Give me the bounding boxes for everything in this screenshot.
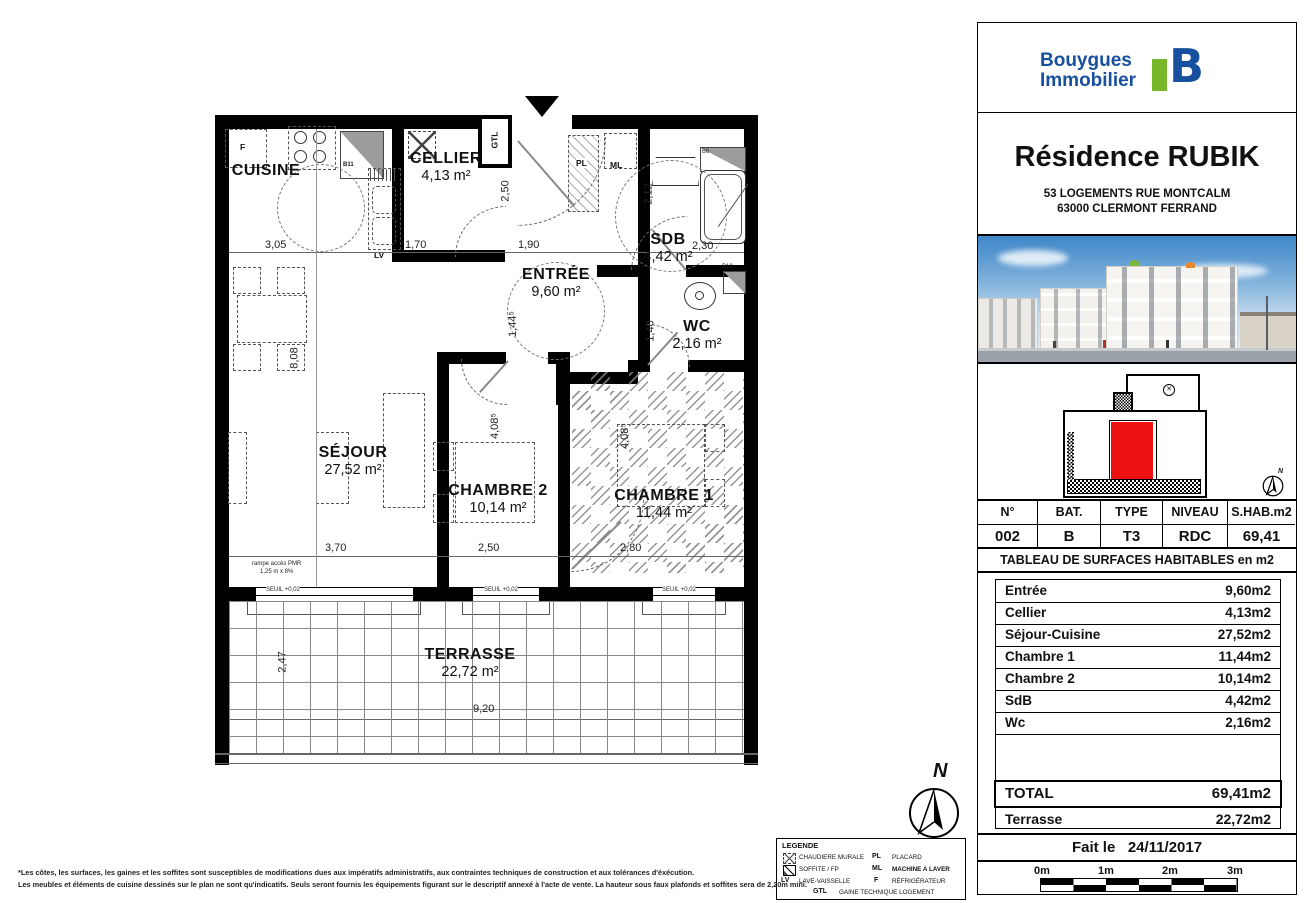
wall (215, 115, 478, 129)
seuil-note: SEUIL +0,02 (266, 587, 300, 593)
scale-bar (1040, 878, 1238, 892)
soffit-tag-b10: B10 (722, 264, 733, 270)
north-label: N (933, 760, 947, 783)
dim-label: 2,80 (620, 542, 641, 554)
key-plan: ✕ (1063, 372, 1213, 498)
street-lamp (1266, 296, 1268, 350)
nightstand (705, 424, 725, 452)
room-label-cellier: CELLIER4,13 m² (404, 150, 488, 184)
scale-label: 1m (1098, 865, 1114, 877)
soffit-tag-b11: B11 (343, 162, 354, 168)
door-arc (428, 48, 606, 226)
nightstand (433, 442, 454, 471)
dim-label: 2,50 (500, 180, 512, 201)
surface-row-terrasse: Terrasse22,72m2 (996, 808, 1280, 829)
pedestrian (1053, 341, 1056, 348)
room-label-chambre2: CHAMBRE 210,14 m² (448, 482, 548, 516)
surface-row: Cellier4,13m2 (996, 602, 1280, 625)
wall (215, 115, 229, 601)
wall (714, 587, 744, 601)
railing (215, 763, 758, 764)
surface-row: Chambre 210,14m2 (996, 668, 1280, 691)
unit-info-value: 002 (978, 524, 1038, 549)
mini-compass-icon: N (1262, 470, 1288, 498)
wall (215, 601, 229, 765)
brand-name-line2: Immobilier (1040, 71, 1136, 91)
surface-row: Wc2,16m2 (996, 712, 1280, 735)
key-plan-box: ✕ N (977, 363, 1297, 500)
unit-info-header: BAT. (1038, 501, 1101, 525)
brand-logo: Bouygues Immobilier B (1040, 45, 1240, 95)
scale-label: 0m (1034, 865, 1050, 877)
legend-item-label: CHAUDIERE MURALE (799, 854, 864, 861)
ramp-note2: 1,25 m x 8% (260, 569, 293, 575)
room-label-terrasse: TERRASSE22,72 m² (415, 646, 525, 680)
surface-row: SdB4,42m2 (996, 690, 1280, 713)
room-label-cuisine: CUISINE (218, 162, 314, 180)
north-compass-icon: N (905, 760, 967, 844)
ml-tag: ML (610, 160, 622, 170)
zone-line (316, 129, 317, 587)
building-main (1106, 266, 1238, 356)
toilet (684, 282, 716, 310)
building-photo (977, 235, 1297, 363)
wall (538, 587, 652, 601)
wall (437, 352, 449, 601)
disclaimer-line2: Les meubles et éléments de cuisine dessi… (18, 880, 963, 889)
fridge-tag: F (240, 142, 245, 152)
pedestrian (1103, 340, 1106, 348)
wall (744, 601, 758, 765)
logo-box: Bouygues Immobilier B (977, 22, 1297, 113)
scale-label: 2m (1162, 865, 1178, 877)
dim-label: 1,90 (518, 239, 539, 251)
chair (277, 267, 305, 294)
entry-arrow-icon (525, 96, 559, 117)
street (978, 348, 1296, 363)
dim-label: 4,08⁵ (489, 413, 501, 439)
chair (233, 267, 261, 294)
cloud (998, 250, 1068, 266)
scale-label: 3m (1227, 865, 1243, 877)
brand-name-line1: Bouygues (1040, 51, 1136, 71)
dim-label: 2,12 (643, 183, 655, 204)
room-label-chambre1: CHAMBRE 111,44 m² (613, 487, 715, 521)
legend-item-label: GAINE TECHNIQUE LOGEMENT (839, 889, 934, 896)
wall (572, 115, 758, 129)
surface-row-total: TOTAL69,41m2 (994, 780, 1282, 808)
wall (229, 587, 255, 601)
legend-item-abbr: GTL (813, 888, 827, 895)
brand-b-icon: B (1152, 49, 1222, 97)
dim-label: 8,08 (289, 347, 301, 368)
surface-table-box: Entrée9,60m2 Cellier4,13m2 Séjour-Cuisin… (977, 572, 1297, 834)
dim-line (229, 556, 744, 557)
date-value: 24/11/2017 (1128, 839, 1202, 856)
boiler-legend-icon (783, 853, 796, 864)
title-box: Résidence RUBIK 53 LOGEMENTS RUE MONTCAL… (977, 112, 1297, 235)
residence-address: 53 LOGEMENTS RUE MONTCALM 63000 CLERMONT… (978, 187, 1296, 217)
dim-label: 1,44⁵ (507, 311, 519, 337)
room-label-sejour: SÉJOUR27,52 m² (308, 444, 398, 478)
unit-info-header: NIVEAU (1163, 501, 1228, 525)
seuil-note: SEUIL +0,02 (662, 587, 696, 593)
surface-row: Séjour-Cuisine27,52m2 (996, 624, 1280, 647)
scale-bar-box: 0m 1m 2m 3m (977, 861, 1297, 895)
radiator (228, 432, 247, 504)
gtl-tag: GTL (490, 132, 500, 149)
room-label-entree: ENTRÉE9,60 m² (511, 266, 601, 300)
dim-label: 2,50 (478, 542, 499, 554)
keyplan-mark: ✕ (1163, 384, 1175, 396)
parasol-orange (1186, 262, 1195, 268)
kitchen-sink (368, 168, 401, 250)
room-label-wc: WC2,16 m² (660, 318, 734, 352)
dim-label: 4,08⁵ (619, 423, 631, 449)
building-far-left (978, 298, 1038, 352)
date-label: Fait le (1072, 839, 1115, 856)
dim-label: 2,30 (692, 240, 713, 252)
floor-plan: GTL B11 B6 B10 F LV (0, 0, 970, 903)
unit-info-header: TYPE (1101, 501, 1163, 525)
dim-label: 3,70 (325, 542, 346, 554)
chair (233, 344, 261, 371)
address-line2: 63000 CLERMONT FERRAND (978, 202, 1296, 217)
residence-title: Résidence RUBIK (978, 141, 1296, 174)
ramp-note: rampe accès PMR (252, 561, 301, 567)
parasol-green (1130, 260, 1139, 266)
address-line1: 53 LOGEMENTS RUE MONTCALM (978, 187, 1296, 202)
legend-item-label: PLACARD (892, 854, 922, 861)
wall (628, 360, 646, 372)
floor-plan-sheet: GTL B11 B6 B10 F LV (0, 0, 1310, 903)
unit-info-value: T3 (1101, 524, 1163, 549)
unit-info-header: N° (978, 501, 1038, 525)
disclaimer-line1: *Les côtes, les surfaces, les gaines et … (18, 868, 963, 877)
unit-info-value: 69,41 (1228, 524, 1295, 549)
surface-row: Chambre 111,44m2 (996, 646, 1280, 669)
surface-table-title-bar: TABLEAU DE SURFACES HABITABLES en m2 (977, 548, 1297, 572)
dim-label: 9,20 (473, 703, 494, 715)
soffit-triangle-b10 (723, 271, 746, 294)
key-plan-unit-highlight (1111, 422, 1153, 486)
dim-label: 2,47 (277, 651, 289, 672)
dim-label: 3,05 (265, 239, 286, 251)
dim-label: 1,70 (405, 239, 426, 251)
surface-table: Entrée9,60m2 Cellier4,13m2 Séjour-Cuisin… (995, 579, 1281, 829)
legend-title: LEGENDE (782, 841, 818, 850)
unit-info-value: B (1038, 524, 1101, 549)
wall (688, 360, 758, 372)
unit-info-header: S.HAB.m2 (1228, 501, 1295, 525)
dining-table (237, 295, 307, 343)
seuil-note: SEUIL +0,02 (484, 587, 518, 593)
soffit-tag-b6: B6 (702, 149, 709, 155)
legend-item-abbr: PL (872, 853, 881, 860)
surface-row: Entrée9,60m2 (996, 580, 1280, 603)
wall (558, 405, 570, 601)
date-box: Fait le 24/11/2017 (977, 834, 1297, 861)
dim-label: 1,40 (645, 320, 657, 341)
unit-info-table: N° BAT. TYPE NIVEAU S.HAB.m2 002 B T3 RD… (977, 500, 1297, 548)
unit-info-value: RDC (1163, 524, 1228, 549)
railing (215, 753, 758, 755)
pedestrian (1166, 340, 1169, 348)
surface-table-title: TABLEAU DE SURFACES HABITABLES en m2 (978, 549, 1296, 571)
